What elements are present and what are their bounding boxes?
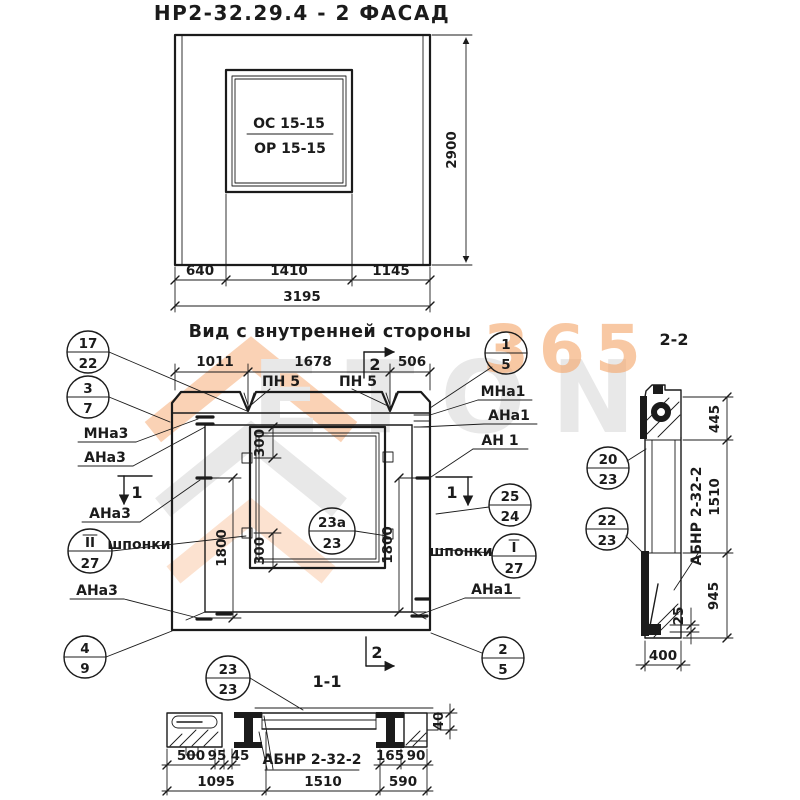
dim-1800-left: 1800 [211,474,241,622]
facade-title: НР2-32.29.4 - 2 ФАСАД [154,1,450,25]
svg-text:АН 1: АН 1 [481,433,518,449]
dim-95: 95 [208,748,227,764]
section-1-1-dimensions: 500 95 45 165 90 1095 1510 590 40 [162,704,457,795]
svg-text:23: 23 [598,533,617,549]
dim-1510-section: 1510 [707,478,723,516]
svg-text:3: 3 [83,381,92,397]
section-marker-2-bottom: 2 [366,637,394,666]
dim-590: 590 [389,774,417,790]
svg-text:2: 2 [498,642,507,658]
section-2-2-title: 2-2 [660,330,689,349]
dim-40: 40 [431,712,447,731]
dim-506: 506 [398,354,426,370]
dim-1510-plan: 1510 [304,774,342,790]
dim-445: 445 [707,405,723,433]
svg-text:300: 300 [252,429,268,457]
dim-1095: 1095 [197,774,235,790]
svg-text:7: 7 [83,401,92,417]
svg-text:1: 1 [446,483,457,502]
svg-text:1800: 1800 [214,529,230,567]
dim-500: 500 [177,748,205,764]
section-1-1-abnr-label: АБНР 2-32-2 [259,716,361,770]
svg-text:1: 1 [501,337,510,353]
dim-640: 640 [186,263,214,279]
dim-90: 90 [407,748,426,764]
svg-text:5: 5 [501,357,510,373]
svg-text:300: 300 [252,537,268,565]
label-pn5-left: ПН 5 [262,374,300,390]
callout-2-5: 2 5 [431,633,524,679]
svg-text:АНа3: АНа3 [89,506,131,522]
svg-text:5: 5 [498,662,507,678]
inner-view-heading: Вид с внутренней стороны [189,322,472,342]
svg-text:23: 23 [219,662,238,678]
svg-text:17: 17 [79,336,98,352]
section-2-2-abnr-label: АБНР 2-32-2 [674,467,705,590]
svg-text:2: 2 [369,355,380,374]
svg-text:22: 22 [598,513,617,529]
svg-text:23: 23 [219,682,238,698]
svg-text:II: II [85,535,95,551]
section-marker-1-left: 1 [118,476,152,504]
svg-text:23а: 23а [318,515,346,531]
svg-text:27: 27 [505,561,524,577]
svg-text:20: 20 [599,452,618,468]
svg-text:1800: 1800 [380,526,396,564]
section-marker-1-right: 1 [436,477,472,505]
technical-drawing: ETON 365 НР2-32.29.4 - 2 ФАСАД ОС 15-15 … [0,0,800,800]
facade-window: ОС 15-15 ОР 15-15 [226,70,352,192]
label-ana3-lower: АНа3 [70,583,198,618]
window-mark-top: ОС 15-15 [253,116,325,132]
svg-text:2: 2 [371,643,382,662]
svg-text:МНа3: МНа3 [84,426,129,442]
svg-text:1: 1 [131,483,142,502]
svg-text:АНа3: АНа3 [84,450,126,466]
svg-text:АНа1: АНа1 [488,408,530,424]
svg-text:АБНР 2-32-2: АБНР 2-32-2 [263,752,362,768]
svg-text:9: 9 [80,661,89,677]
callout-4-9: 4 9 [64,631,172,678]
svg-text:I: I [511,540,516,556]
dim-1011: 1011 [196,354,234,370]
svg-text:27: 27 [81,556,100,572]
dim-945: 945 [706,582,722,610]
dim-165: 165 [376,748,404,764]
dim-25: 25 [671,607,687,626]
dim-1800-right: 1800 [380,474,430,616]
label-ana1-lower: АНа1 [419,582,520,615]
callout-23a-23: 23а 23 [309,508,387,554]
facade-view: НР2-32.29.4 - 2 ФАСАД ОС 15-15 ОР 15-15 … [154,1,472,312]
svg-text:23: 23 [599,472,618,488]
section-1-1: 1-1 23 23 [162,656,457,795]
dim-2900: 2900 [444,131,460,169]
svg-text:МНа1: МНа1 [481,384,526,400]
svg-text:23: 23 [323,536,342,552]
svg-text:4: 4 [80,641,89,657]
window-mark-bottom: ОР 15-15 [254,141,326,157]
svg-text:АБНР 2-32-2: АБНР 2-32-2 [689,467,705,566]
dim-45: 45 [231,748,250,764]
label-pn5-right: ПН 5 [339,374,377,390]
dim-1678: 1678 [294,354,332,370]
dim-1145: 1145 [372,263,410,279]
svg-text:АНа3: АНа3 [76,583,118,599]
svg-text:АНа1: АНа1 [471,582,513,598]
svg-text:25: 25 [501,489,520,505]
facade-dimensions: 640 1410 1145 3195 2900 [171,35,472,312]
section-1-1-title: 1-1 [313,672,342,691]
svg-text:22: 22 [79,356,98,372]
svg-text:24: 24 [501,509,520,525]
dim-1410: 1410 [270,263,308,279]
callout-22-23: 22 23 [586,508,646,556]
callout-23-23: 23 23 [206,656,303,710]
dim-400: 400 [649,648,677,664]
dim-3195: 3195 [283,289,321,305]
